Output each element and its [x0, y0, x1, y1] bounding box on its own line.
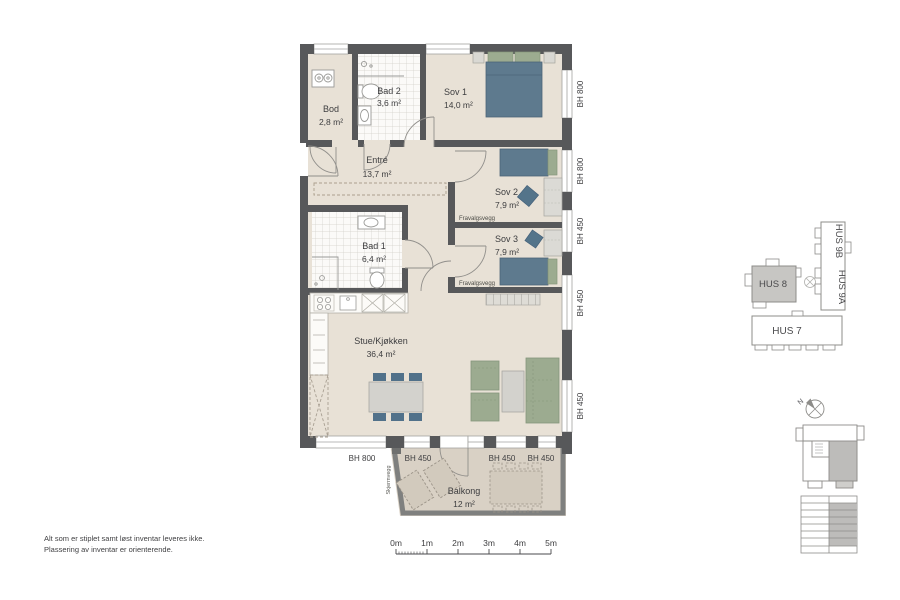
dining-set — [369, 373, 423, 421]
window-right-3 — [562, 210, 572, 252]
scale-0m: 0m — [390, 538, 402, 548]
armchair-1 — [471, 361, 499, 390]
label-hus7: HUS 7 — [772, 326, 802, 337]
label-fravalgsvegg-1: Fravalgsvegg — [459, 216, 495, 222]
window-bod — [314, 44, 348, 54]
window-bottom-2 — [404, 436, 430, 448]
scale-4m: 4m — [514, 538, 526, 548]
disclaimer-line-1: Alt som er stiplet samt løst inventar le… — [44, 534, 204, 543]
label-bad2: Bad 2 — [377, 86, 401, 96]
label-bod: Bod — [323, 104, 339, 114]
window-bottom-4 — [496, 436, 526, 448]
hus8-building: HUS 8 — [745, 259, 801, 308]
stue-sideboard — [486, 294, 540, 305]
label-stue: Stue/Kjøkken — [354, 336, 408, 346]
label-sov2: Sov 2 — [495, 187, 518, 197]
bad2-sink-icon — [358, 106, 371, 125]
entrance-opening — [300, 143, 308, 176]
label-balkong-area: 12 m² — [453, 499, 475, 509]
disclaimer: Alt som er stiplet samt løst inventar le… — [44, 534, 204, 554]
kitchen-counter-top — [310, 293, 408, 313]
label-stue-area: 36,4 m² — [367, 349, 396, 359]
label-balkong: Balkong — [448, 486, 481, 496]
bh-bottom-4: BH 450 — [528, 454, 555, 463]
bad1-vanity-icon — [358, 216, 385, 229]
scale-2m: 2m — [452, 538, 464, 548]
disclaimer-line-2: Plassering av inventar er orienterende. — [44, 545, 173, 554]
site-tree-icon — [805, 277, 816, 288]
sov2-wardrobe — [544, 178, 562, 216]
label-entre-area: 13,7 m² — [363, 169, 392, 179]
bad1-toilet-icon — [370, 268, 384, 288]
kitchen-counter-left — [310, 313, 328, 375]
bh-right-2: BH 800 — [576, 157, 585, 184]
sov2-bed — [500, 149, 557, 176]
scale-3m: 3m — [483, 538, 495, 548]
coffee-table — [502, 371, 524, 412]
bh-right-4: BH 450 — [576, 289, 585, 316]
key-plan — [796, 425, 864, 488]
label-skjermvegg: Skjermvegg — [386, 465, 392, 494]
north-arrow-icon: N — [797, 398, 824, 418]
window-bottom-3 — [468, 436, 484, 448]
label-bad1-area: 6,4 m² — [362, 254, 386, 264]
window-bottom-5 — [538, 436, 556, 448]
scale-bar: 0m 1m 2m 3m 4m 5m — [390, 538, 557, 554]
sov3-wardrobe — [544, 230, 562, 256]
sink-icon — [340, 296, 356, 310]
label-sov3-area: 7,9 m² — [495, 247, 519, 257]
floorplan-svg: Bod 2,8 m² Bad 2 3,6 m² Sov 1 14,0 m² En… — [0, 0, 900, 600]
label-hus9b: HUS 9B — [833, 224, 844, 258]
label-north: N — [797, 398, 805, 407]
label-bad2-area: 3,6 m² — [377, 98, 401, 108]
label-sov1-area: 14,0 m² — [444, 100, 473, 110]
scale-5m: 5m — [545, 538, 557, 548]
label-sov1: Sov 1 — [444, 87, 467, 97]
scale-1m: 1m — [421, 538, 433, 548]
bh-right-3: BH 450 — [576, 217, 585, 244]
bh-bottom-3: BH 450 — [489, 454, 516, 463]
label-fravalgsvegg-2: Fravalgsvegg — [459, 281, 495, 287]
floor-stack — [801, 496, 857, 553]
label-sov2-area: 7,9 m² — [495, 200, 519, 210]
sov3-bed — [500, 258, 557, 285]
window-right-4 — [562, 275, 572, 330]
window-right-1 — [562, 70, 572, 118]
label-sov3: Sov 3 — [495, 234, 518, 244]
label-bod-area: 2,8 m² — [319, 117, 343, 127]
window-right-2 — [562, 150, 572, 192]
bh-right-1: BH 800 — [576, 80, 585, 107]
window-sov1-top — [426, 44, 470, 54]
floorplan-page: Bod 2,8 m² Bad 2 3,6 m² Sov 1 14,0 m² En… — [0, 0, 900, 600]
hus7-building: HUS 7 — [752, 311, 842, 350]
bh-bottom-1: BH 800 — [349, 454, 376, 463]
window-right-5 — [562, 380, 572, 432]
bh-bottom-2: BH 450 — [405, 454, 432, 463]
label-entre: Entré — [366, 155, 388, 165]
window-bottom-1 — [316, 436, 386, 448]
bh-right-5: BH 450 — [576, 392, 585, 419]
armchair-2 — [471, 393, 499, 421]
bad1-tile-floor — [312, 212, 402, 288]
sofa — [526, 358, 559, 423]
site-plan: HUS 8 HUS 9B HUS 9A HUS 7 — [745, 222, 851, 350]
washer-icon — [312, 70, 334, 87]
label-hus9a: HUS 9A — [836, 270, 847, 305]
label-bad1: Bad 1 — [362, 241, 386, 251]
label-hus8: HUS 8 — [759, 279, 787, 290]
balcony-door-opening — [440, 436, 468, 448]
hus9-building: HUS 9B HUS 9A — [815, 222, 851, 310]
